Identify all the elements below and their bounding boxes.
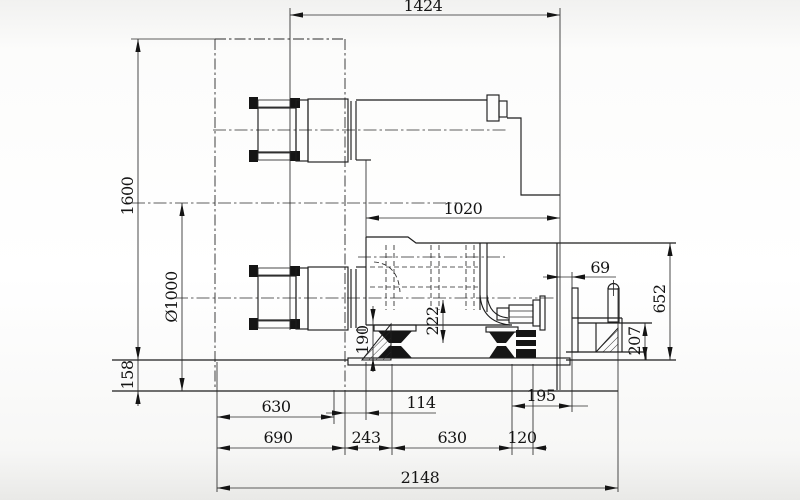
dim-630b-label: 630	[437, 428, 466, 447]
dim-630a-label: 630	[261, 397, 290, 416]
dim-2148-label: 2148	[401, 468, 440, 487]
dim-190-label: 190	[353, 325, 372, 354]
dim-195-label: 195	[526, 386, 555, 405]
dim-1000-label: Ø1000	[162, 271, 181, 323]
dim-690-label: 690	[263, 428, 292, 447]
top-cylinder	[249, 95, 560, 195]
bottom-cylinder	[249, 265, 366, 330]
bearing-block	[516, 330, 536, 358]
dimension-arrows	[135, 12, 672, 490]
dim-120-label: 120	[507, 428, 536, 447]
dim-158-label: 158	[118, 360, 137, 389]
phantom-body-outline	[215, 39, 345, 390]
dim-652-label: 652	[650, 284, 669, 313]
dim-1424-label: 1424	[404, 0, 443, 15]
dim-69-label: 69	[590, 258, 610, 277]
dim-1600-label: 1600	[118, 176, 137, 215]
dim-1020-label: 1020	[444, 199, 483, 218]
lower-housing	[366, 237, 676, 390]
extension-lines	[131, 8, 618, 492]
centerlines	[132, 130, 557, 298]
bellows-right	[486, 327, 518, 358]
engineering-drawing: 1424 1600 Ø1000 158 1020 69 652 207 222 …	[0, 0, 800, 500]
dim-207-label: 207	[625, 326, 644, 355]
drawing-canvas: 1424 1600 Ø1000 158 1020 69 652 207 222 …	[0, 0, 800, 500]
dim-114-label: 114	[406, 393, 435, 412]
dim-243-label: 243	[351, 428, 380, 447]
dim-222-label: 222	[423, 306, 442, 335]
